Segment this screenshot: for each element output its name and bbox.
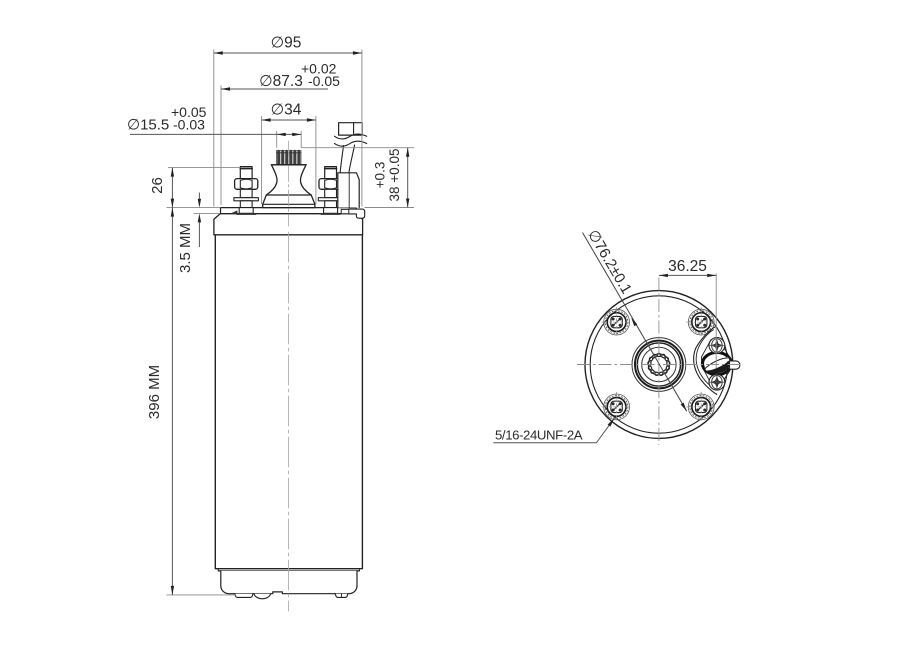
- svg-text:36.25: 36.25: [668, 258, 707, 275]
- svg-text:∅15.5: ∅15.5: [127, 117, 169, 134]
- svg-text:∅95: ∅95: [271, 35, 302, 52]
- svg-text:-0.05: -0.05: [308, 73, 340, 89]
- svg-text:3.5 MM: 3.5 MM: [177, 223, 194, 273]
- svg-text:5/16-24UNF-2A: 5/16-24UNF-2A: [495, 428, 583, 443]
- svg-text:396 MM: 396 MM: [146, 365, 163, 419]
- svg-text:38 +0.05: 38 +0.05: [387, 149, 402, 202]
- svg-text:∅34: ∅34: [271, 102, 302, 119]
- svg-text:+0.3: +0.3: [373, 162, 388, 189]
- svg-text:∅87.3: ∅87.3: [259, 73, 303, 90]
- svg-text:26: 26: [149, 177, 166, 194]
- svg-text:-0.03: -0.03: [173, 117, 205, 133]
